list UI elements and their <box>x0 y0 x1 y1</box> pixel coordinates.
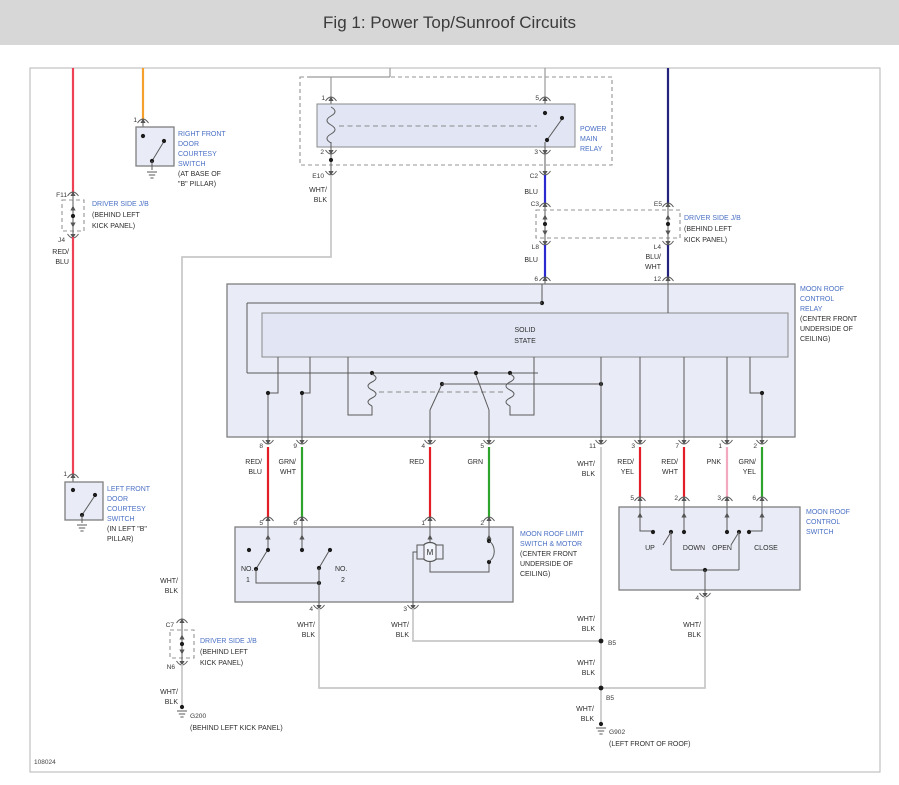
moon-roof-control-switch: 5 2 3 6 UP DOWN OPEN CLOSE MOON ROOF CON… <box>601 495 850 688</box>
switch-position-label: DOWN <box>683 545 705 552</box>
wire-color-label: BLK <box>582 670 596 677</box>
pin-label: 2 <box>320 149 324 156</box>
component-name: MOON ROOF LIMIT <box>520 531 585 538</box>
solid-state-label: SOLID <box>514 327 535 334</box>
pin-label: 5 <box>630 495 634 502</box>
wire-color-label: WHT/ <box>577 461 595 468</box>
switch-name: NO. <box>241 566 254 573</box>
pin-label: 12 <box>654 276 662 283</box>
switch-number: 2 <box>341 577 345 584</box>
component-location: "B" PILLAR) <box>178 181 216 188</box>
component-name: SWITCH <box>107 516 135 523</box>
pin-label: 4 <box>309 606 313 613</box>
component-name: POWER <box>580 126 606 133</box>
component-location: (CENTER FRONT <box>520 551 578 558</box>
connector-label: C3 <box>531 201 540 208</box>
component-location: UNDERSIDE OF <box>800 326 853 333</box>
wire-color-label: WHT/ <box>391 622 409 629</box>
wire-color-label: GRN <box>467 459 483 466</box>
wire-color-label: PNK <box>707 459 722 466</box>
wht-blk-wire <box>601 596 705 688</box>
connector-label: C7 <box>166 622 175 629</box>
wire-color-label: WHT/ <box>683 622 701 629</box>
wire-color-label: BLK <box>582 626 596 633</box>
pin-label: 5 <box>480 443 484 450</box>
pin-label: 2 <box>480 520 484 527</box>
ground-location: (BEHIND LEFT KICK PANEL) <box>190 725 283 732</box>
connector-label: J4 <box>58 237 65 244</box>
wire-color-label: GRN/ <box>739 459 757 466</box>
wire-color-label: BLK <box>165 699 179 706</box>
ground-location: (LEFT FRONT OF ROOF) <box>609 741 690 748</box>
ground-label: G200 <box>190 713 206 720</box>
wire-color-label: WHT/ <box>160 689 178 696</box>
pin-label: 4 <box>695 595 699 602</box>
connector-label: E10 <box>312 173 324 180</box>
pin-label: 7 <box>675 443 679 450</box>
wire-color-label: WHT <box>280 469 297 476</box>
wire-color-label: BLU <box>55 259 69 266</box>
wire-color-label: BLK <box>165 588 179 595</box>
wire-color-label: BLU <box>524 257 538 264</box>
connector-label: C2 <box>530 173 539 180</box>
component-name: RELAY <box>580 146 603 153</box>
component-name: DOOR <box>107 496 128 503</box>
component-name: MOON ROOF <box>800 286 844 293</box>
component-name: SWITCH <box>178 161 206 168</box>
component-name: CONTROL <box>806 519 840 526</box>
component-location: (BEHIND LEFT <box>684 226 733 233</box>
wire-color-label: YEL <box>743 469 756 476</box>
component-location: KICK PANEL) <box>684 237 727 244</box>
component-name: RELAY <box>800 306 823 313</box>
driver-side-jb-f11: F11 DRIVER SIDE J/B (BEHIND LEFT KICK PA… <box>52 68 149 474</box>
component-location: (AT BASE OF <box>178 171 221 178</box>
pin-label: 1 <box>321 95 325 102</box>
wire-color-label: YEL <box>621 469 634 476</box>
pin-label: 6 <box>293 520 297 527</box>
wire-color-label: BLU <box>524 189 538 196</box>
connector-label: E5 <box>654 201 662 208</box>
wire-color-label: WHT/ <box>577 660 595 667</box>
component-location: PILLAR) <box>107 536 133 543</box>
component-name: MAIN <box>580 136 598 143</box>
switch-position-label: OPEN <box>712 545 732 552</box>
component-location: (CENTER FRONT <box>800 316 858 323</box>
ground-label: G902 <box>609 729 625 736</box>
pin-label: 2 <box>753 443 757 450</box>
wire-color-label: BLK <box>302 632 316 639</box>
wht-blk-wire <box>319 608 601 688</box>
component-location: (BEHIND LEFT <box>92 212 141 219</box>
connector-label: N6 <box>167 664 176 671</box>
component-name: LEFT FRONT <box>107 486 151 493</box>
component-name: DRIVER SIDE J/B <box>200 638 257 645</box>
pin-label: 1 <box>63 471 67 478</box>
drawing-number: 108024 <box>34 759 56 766</box>
component-name: COURTESY <box>107 506 146 513</box>
ground-g902: WHT/ BLK B5 WHT/ BLK B5 WHT/ BLK G902 (L… <box>576 616 690 748</box>
pin-label: 2 <box>674 495 678 502</box>
switch-name: NO. <box>335 566 348 573</box>
switch-position-label: CLOSE <box>754 545 778 552</box>
wire-color-label: WHT/ <box>309 187 327 194</box>
right-front-door-courtesy-switch: 1 RIGHT FRONT DOOR COURTESY SWITCH (AT B… <box>133 68 226 188</box>
component-name: DRIVER SIDE J/B <box>684 215 741 222</box>
pin-label: 3 <box>631 443 635 450</box>
component-name: SWITCH <box>806 529 834 536</box>
pin-label: 1 <box>421 520 425 527</box>
pin-label: 5 <box>259 520 263 527</box>
component-name: CONTROL <box>800 296 834 303</box>
moon-roof-control-relay: SOLID STATE MOON ROOF CONTROL <box>227 284 858 450</box>
component-location: CEILING) <box>800 336 830 343</box>
wire-color-label: WHT <box>662 469 679 476</box>
wire-color-label: RED <box>409 459 424 466</box>
wire-color-label: BLU <box>248 469 262 476</box>
component-name: SWITCH & MOTOR <box>520 541 582 548</box>
wire-color-label: RED/ <box>52 249 69 256</box>
wire-color-label: BLK <box>581 716 595 723</box>
wire-color-label: WHT/ <box>160 578 178 585</box>
connector-label: F11 <box>56 192 67 199</box>
pin-label: 3 <box>717 495 721 502</box>
component-location: KICK PANEL) <box>92 223 135 230</box>
wire-color-label: WHT/ <box>577 616 595 623</box>
component-location: CEILING) <box>520 571 550 578</box>
pin-label: 9 <box>293 443 297 450</box>
solid-state-label: STATE <box>514 338 536 345</box>
component-name: DOOR <box>178 141 199 148</box>
wire-color-label: RED/ <box>661 459 678 466</box>
junction-label: B5 <box>608 640 616 647</box>
wire-color-label: BLK <box>314 197 328 204</box>
wire-color-label: BLK <box>688 632 702 639</box>
wire-color-label: WHT/ <box>576 706 594 713</box>
wire-color-label: RED/ <box>617 459 634 466</box>
junction-label: B5 <box>606 695 614 702</box>
pin-label: 3 <box>403 606 407 613</box>
wht-blk-wire <box>413 608 601 641</box>
component-name: DRIVER SIDE J/B <box>92 201 149 208</box>
component-location: (IN LEFT "B" <box>107 526 147 533</box>
driver-side-jb-right: C3 E5 DRIVER SIDE J/B (BEHIND LEFT KICK … <box>524 68 741 289</box>
pin-label: 1 <box>133 117 137 124</box>
wire-color-label: BLK <box>396 632 410 639</box>
switch-number: 1 <box>246 577 250 584</box>
pin-label: 1 <box>718 443 722 450</box>
wire-color-label: BLK <box>582 471 596 478</box>
left-front-door-courtesy-switch: 1 LEFT FRONT DOOR COURTESY SWITCH (IN LE… <box>63 471 150 543</box>
component-name: COURTESY <box>178 151 217 158</box>
wire-color-label: RED/ <box>245 459 262 466</box>
pin-label: 11 <box>589 443 596 450</box>
wire-color-label: WHT <box>645 264 662 271</box>
component-location: KICK PANEL) <box>200 660 243 667</box>
wire-color-label: GRN/ <box>279 459 297 466</box>
wire-color-label: BLU/ <box>645 254 661 261</box>
pin-label: 5 <box>535 95 539 102</box>
moon-roof-limit-switch-motor: 5 6 1 2 NO. 1 NO. 2 M MO <box>235 517 601 689</box>
pin-label: 4 <box>421 443 425 450</box>
pin-label: 8 <box>259 443 263 450</box>
wiring-diagram: 108024 F11 DRIVER SIDE J/B (BEHIND LEFT … <box>0 0 899 785</box>
connector-label: L8 <box>532 244 540 251</box>
connector-label: L4 <box>654 244 662 251</box>
wire-color-label: WHT/ <box>297 622 315 629</box>
pin-label: 6 <box>534 276 538 283</box>
pin-label: 6 <box>752 495 756 502</box>
motor-letter: M <box>427 548 434 557</box>
component-location: UNDERSIDE OF <box>520 561 573 568</box>
switch-position-label: UP <box>645 545 655 552</box>
component-location: (BEHIND LEFT <box>200 649 249 656</box>
component-name: RIGHT FRONT <box>178 131 226 138</box>
component-name: MOON ROOF <box>806 509 850 516</box>
pin-label: 3 <box>534 149 538 156</box>
